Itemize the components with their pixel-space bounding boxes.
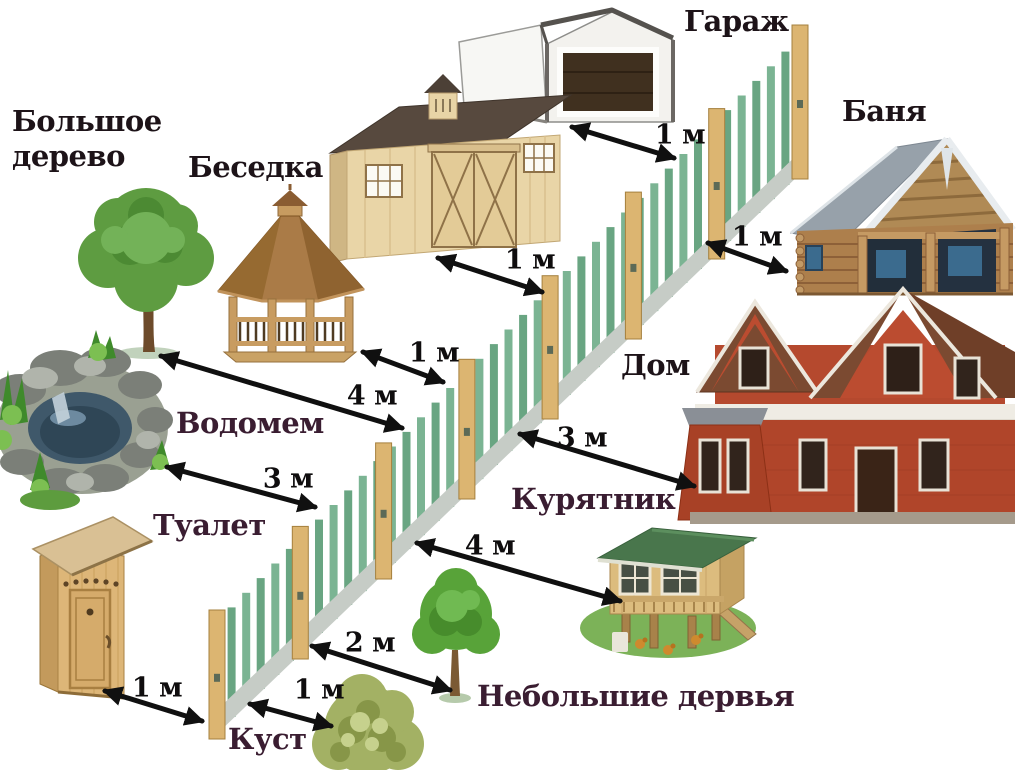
- distance-garage-fence: 1 м: [655, 120, 705, 151]
- label-pond: Водомем: [176, 406, 324, 441]
- label-chicken-coop: Курятник: [511, 482, 675, 517]
- distance-bush-fence: 1 м: [294, 675, 344, 706]
- label-garage: Гараж: [684, 4, 789, 39]
- label-house: Дом: [621, 348, 690, 383]
- distance-shed-fence: 1 м: [505, 245, 555, 276]
- label-small-trees: Небольшие дервья: [477, 679, 794, 714]
- toilet-illustration: [33, 517, 152, 698]
- diagram-canvas: Большое дерево Беседка Гараж Баня Дом Во…: [0, 0, 1024, 770]
- label-gazebo: Беседка: [188, 150, 323, 185]
- chicken-coop-illustration: [580, 528, 756, 658]
- distance-coop-fence: 4 м: [465, 531, 515, 562]
- distance-small-trees-fence: 2 м: [345, 628, 395, 659]
- label-big-tree: Большое дерево: [12, 104, 184, 175]
- big-tree-illustration: [78, 188, 214, 359]
- distance-big-tree-fence: 4 м: [347, 381, 397, 412]
- distance-toilet-fence: 1 м: [132, 673, 182, 704]
- distance-gazebo-fence: 1 м: [409, 338, 459, 369]
- house-illustration: [678, 289, 1015, 524]
- distance-banya-fence: 1 м: [732, 222, 782, 253]
- label-banya: Баня: [842, 94, 926, 129]
- label-toilet: Туалет: [153, 508, 266, 543]
- shed-illustration: [330, 74, 571, 263]
- distance-house-fence: 3 м: [557, 423, 607, 454]
- banya-illustration: [791, 139, 1013, 294]
- label-bush: Куст: [228, 722, 307, 757]
- distance-pond-fence: 3 м: [263, 464, 313, 495]
